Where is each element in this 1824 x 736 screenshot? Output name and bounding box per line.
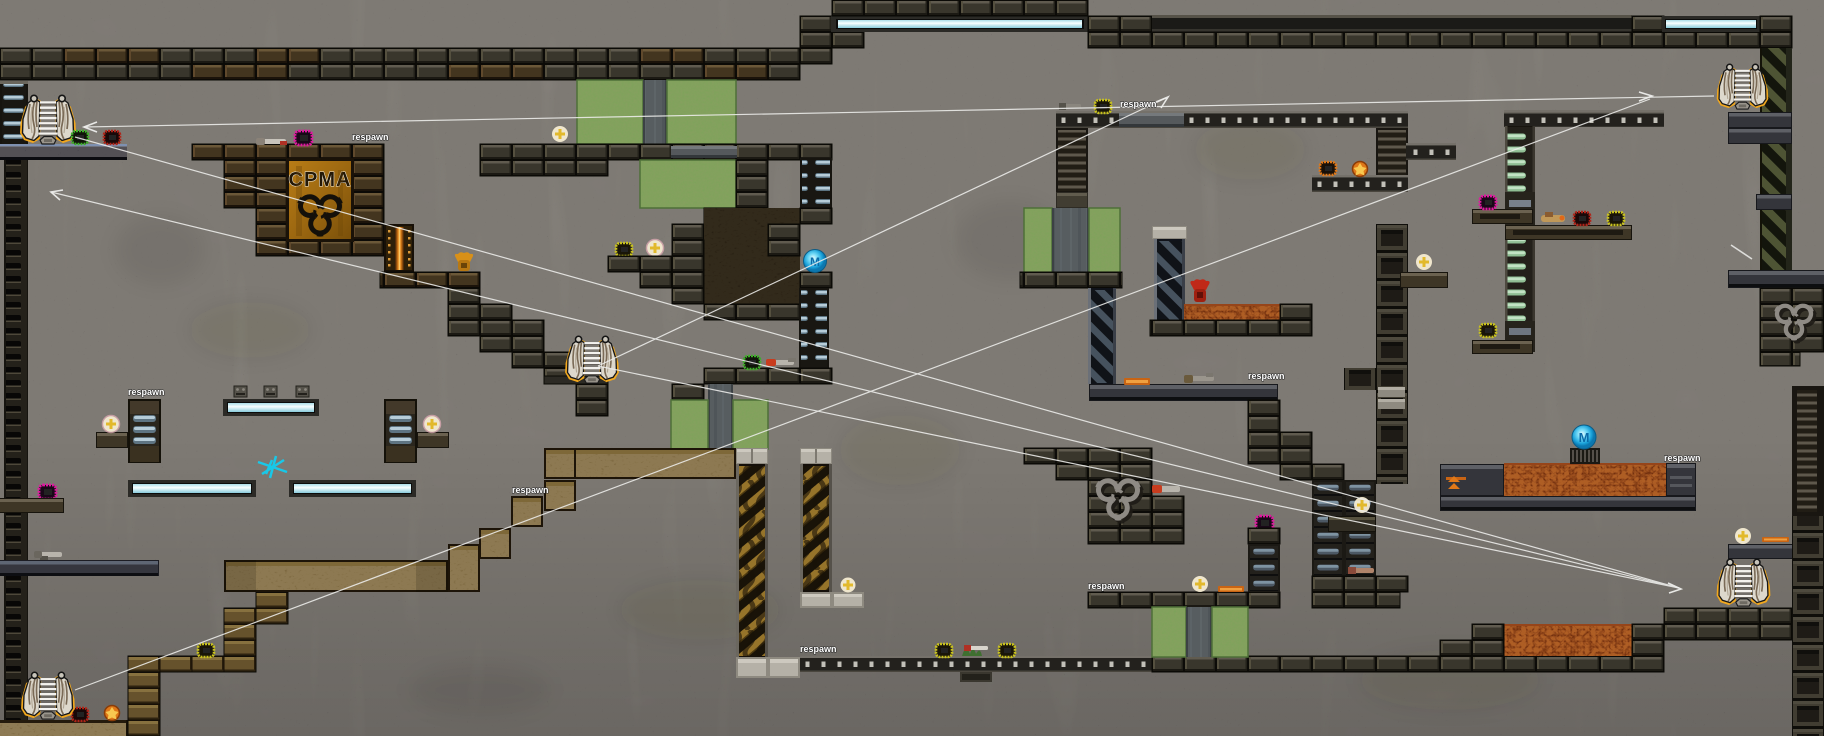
svg-text:respawn: respawn [352, 132, 389, 142]
svg-text:respawn: respawn [1248, 371, 1285, 381]
svg-text:respawn: respawn [512, 485, 549, 495]
svg-text:respawn: respawn [800, 644, 837, 654]
svg-text:respawn: respawn [1088, 581, 1125, 591]
svg-text:respawn: respawn [1120, 99, 1157, 109]
svg-text:respawn: respawn [128, 387, 165, 397]
svg-text:M: M [1579, 430, 1590, 445]
svg-text:respawn: respawn [1664, 453, 1701, 463]
